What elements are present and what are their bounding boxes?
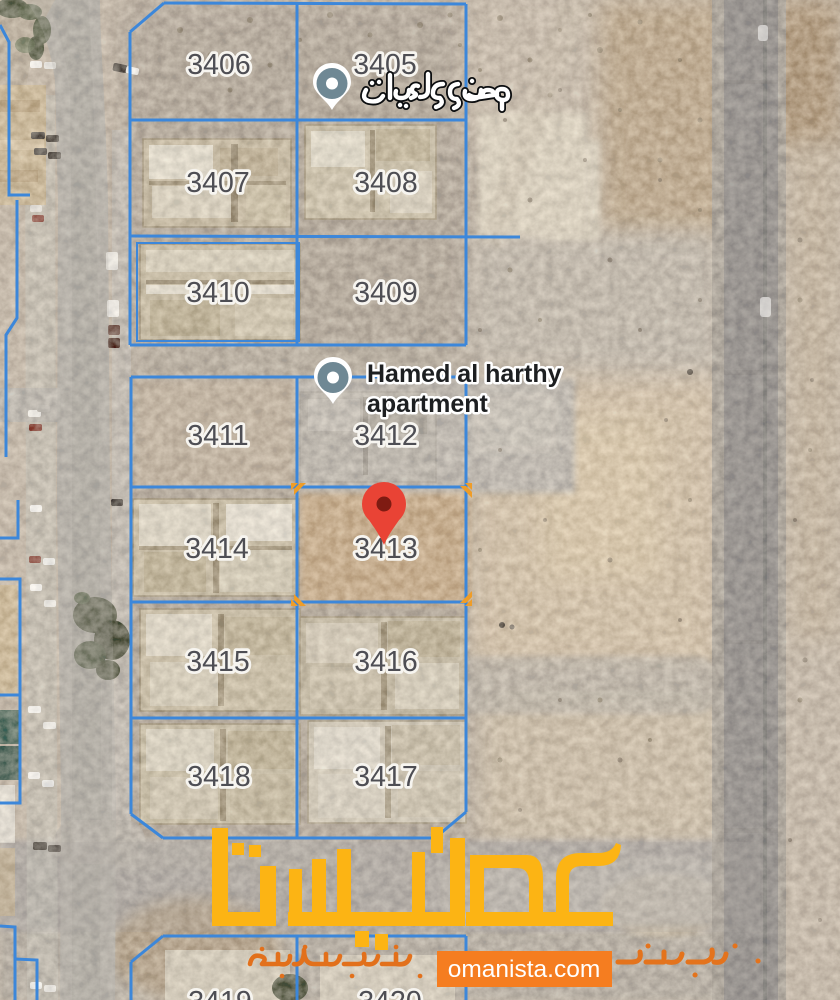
svg-text:Hamed al harthy: Hamed al harthy — [367, 360, 562, 388]
svg-text:3410: 3410 — [186, 277, 249, 309]
svg-text:3412: 3412 — [354, 420, 417, 452]
svg-text:3409: 3409 — [354, 277, 417, 309]
svg-text:3406: 3406 — [187, 49, 250, 81]
svg-text:3417: 3417 — [354, 761, 417, 793]
svg-text:3415: 3415 — [186, 646, 249, 678]
svg-text:apartment: apartment — [367, 390, 489, 418]
svg-text:3414: 3414 — [185, 533, 249, 565]
svg-text:3418: 3418 — [187, 761, 250, 793]
svg-text:3420: 3420 — [358, 986, 421, 1000]
svg-text:3405: 3405 — [353, 49, 416, 81]
svg-text:3411: 3411 — [187, 420, 248, 452]
svg-text:3419: 3419 — [188, 986, 251, 1000]
svg-text:omanista.com: omanista.com — [448, 956, 601, 983]
svg-text:3407: 3407 — [186, 167, 249, 199]
svg-text:3408: 3408 — [354, 167, 417, 199]
svg-text:3416: 3416 — [354, 646, 417, 678]
